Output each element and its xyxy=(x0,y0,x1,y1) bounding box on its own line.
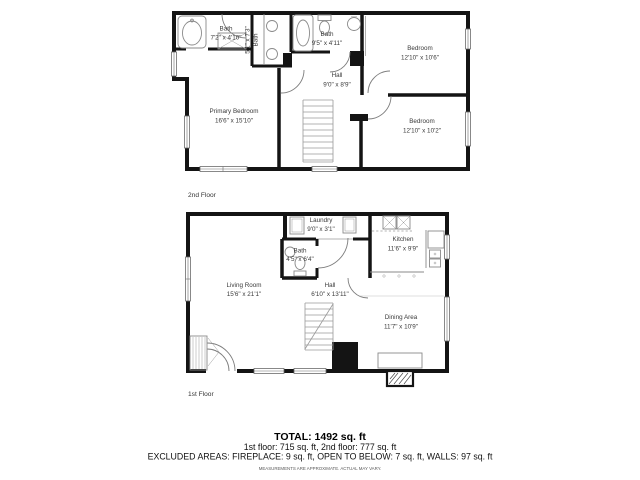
wall-stub xyxy=(350,114,368,121)
room-label-hall1-name: Hall xyxy=(325,282,336,289)
summary-floor-areas: 1st floor: 715 sq. ft, 2nd floor: 777 sq… xyxy=(244,442,397,452)
fireplace xyxy=(387,371,413,386)
wall-mass xyxy=(283,53,292,67)
room-label-bath3-dims: 9'5" x 4'11" xyxy=(312,40,343,47)
window xyxy=(172,52,177,76)
window xyxy=(445,235,450,259)
room-label-bath1-name: Bath xyxy=(220,26,233,33)
chimney-mass xyxy=(332,342,358,371)
room-label-bedroom1-name: Bedroom xyxy=(407,45,433,52)
bedroom1-door-arc xyxy=(368,71,390,93)
entry-closet xyxy=(190,336,219,370)
room-label-laundry-name: Laundry xyxy=(310,217,334,224)
bathtub xyxy=(178,16,206,48)
second-floor-plan: Bath 7'2" x 4'10" Bath 5'1" x 7'3" Bath … xyxy=(172,13,471,199)
window xyxy=(200,167,247,172)
first-floor-title: 1st Floor xyxy=(188,391,214,398)
room-label-living-name: Living Room xyxy=(227,282,262,289)
room-label-living-dims: 15'6" x 21'1" xyxy=(227,291,262,298)
room-label-laundry-dims: 9'0" x 3'1" xyxy=(307,226,335,233)
stove xyxy=(383,216,410,229)
bedroom2-door-arc xyxy=(368,96,391,119)
first-floor-stairs xyxy=(305,303,333,350)
second-floor-stairs xyxy=(303,100,333,162)
room-label-kitchen-name: Kitchen xyxy=(392,236,414,243)
first-floor-plan: Laundry 9'0" x 3'1" Bath 4'5" x 6'4" Kit… xyxy=(186,214,450,398)
window xyxy=(294,369,326,374)
kitchen-sink xyxy=(430,250,441,267)
primary-door-arc xyxy=(281,70,304,93)
first-floor-windows xyxy=(186,235,450,375)
sink xyxy=(348,17,361,31)
entry-door-arc xyxy=(207,343,235,371)
peninsula-counter xyxy=(370,272,424,277)
hall-door-arc xyxy=(348,278,368,298)
room-label-kitchen-dims: 11'6" x 9'9" xyxy=(388,246,419,253)
second-floor-title: 2nd Floor xyxy=(188,192,217,199)
stair-break-line xyxy=(305,304,333,349)
double-vanity-sinks xyxy=(264,14,278,64)
staircase xyxy=(303,100,333,162)
entry-door-opening xyxy=(206,367,237,375)
bathtub xyxy=(293,15,313,51)
window xyxy=(466,29,471,49)
room-label-hall1-dims: 6'10" x 13'11" xyxy=(311,291,349,298)
summary-excluded-areas: EXCLUDED AREAS: FIREPLACE: 9 sq. ft, OPE… xyxy=(148,452,493,462)
summary-block: TOTAL: 1492 sq. ft 1st floor: 715 sq. ft… xyxy=(148,431,493,471)
room-label-dining-dims: 11'7" x 10'9" xyxy=(384,324,418,331)
room-label-hall2-dims: 9'0" x 8'9" xyxy=(323,82,351,89)
refrigerator xyxy=(428,231,444,248)
floorplan-canvas: Bath 7'2" x 4'10" Bath 5'1" x 7'3" Bath … xyxy=(0,0,640,480)
bath-door-arc xyxy=(318,238,348,268)
window xyxy=(254,369,284,374)
room-label-primary-dims: 16'6" x 15'10" xyxy=(215,118,253,125)
dryer xyxy=(343,217,356,233)
room-label-bedroom1-dims: 12'10" x 10'6" xyxy=(401,55,439,62)
room-label-dining-name: Dining Area xyxy=(385,314,418,321)
room-label-bath-dims: 4'5" x 6'4" xyxy=(286,256,314,263)
window xyxy=(466,112,471,146)
room-label-hall2-name: Hall xyxy=(332,72,343,79)
window xyxy=(186,257,191,301)
hearth xyxy=(378,353,422,368)
room-label-bath2-dims: 5'1" x 7'3" xyxy=(245,26,252,54)
window xyxy=(445,297,450,341)
room-label-bedroom2-dims: 12'10" x 10'2" xyxy=(403,128,441,135)
room-label-bath3-name: Bath xyxy=(321,31,334,38)
room-label-bedroom2-name: Bedroom xyxy=(409,118,435,125)
window xyxy=(312,167,337,172)
second-floor-fixtures xyxy=(178,14,366,64)
summary-disclaimer: MEASUREMENTS ARE APPROXIMATE. ACTUAL MAY… xyxy=(259,466,382,471)
washer xyxy=(290,217,304,234)
window xyxy=(185,116,190,148)
room-label-primary-name: Primary Bedroom xyxy=(210,108,259,115)
bath3-door-arc xyxy=(330,52,350,72)
floorplan-page: Bath 7'2" x 4'10" Bath 5'1" x 7'3" Bath … xyxy=(0,0,640,480)
room-label-bath1-dims: 7'2" x 4'10" xyxy=(210,35,241,42)
room-label-bath-name: Bath xyxy=(294,248,307,255)
room-label-bath2-name: Bath xyxy=(253,33,260,46)
